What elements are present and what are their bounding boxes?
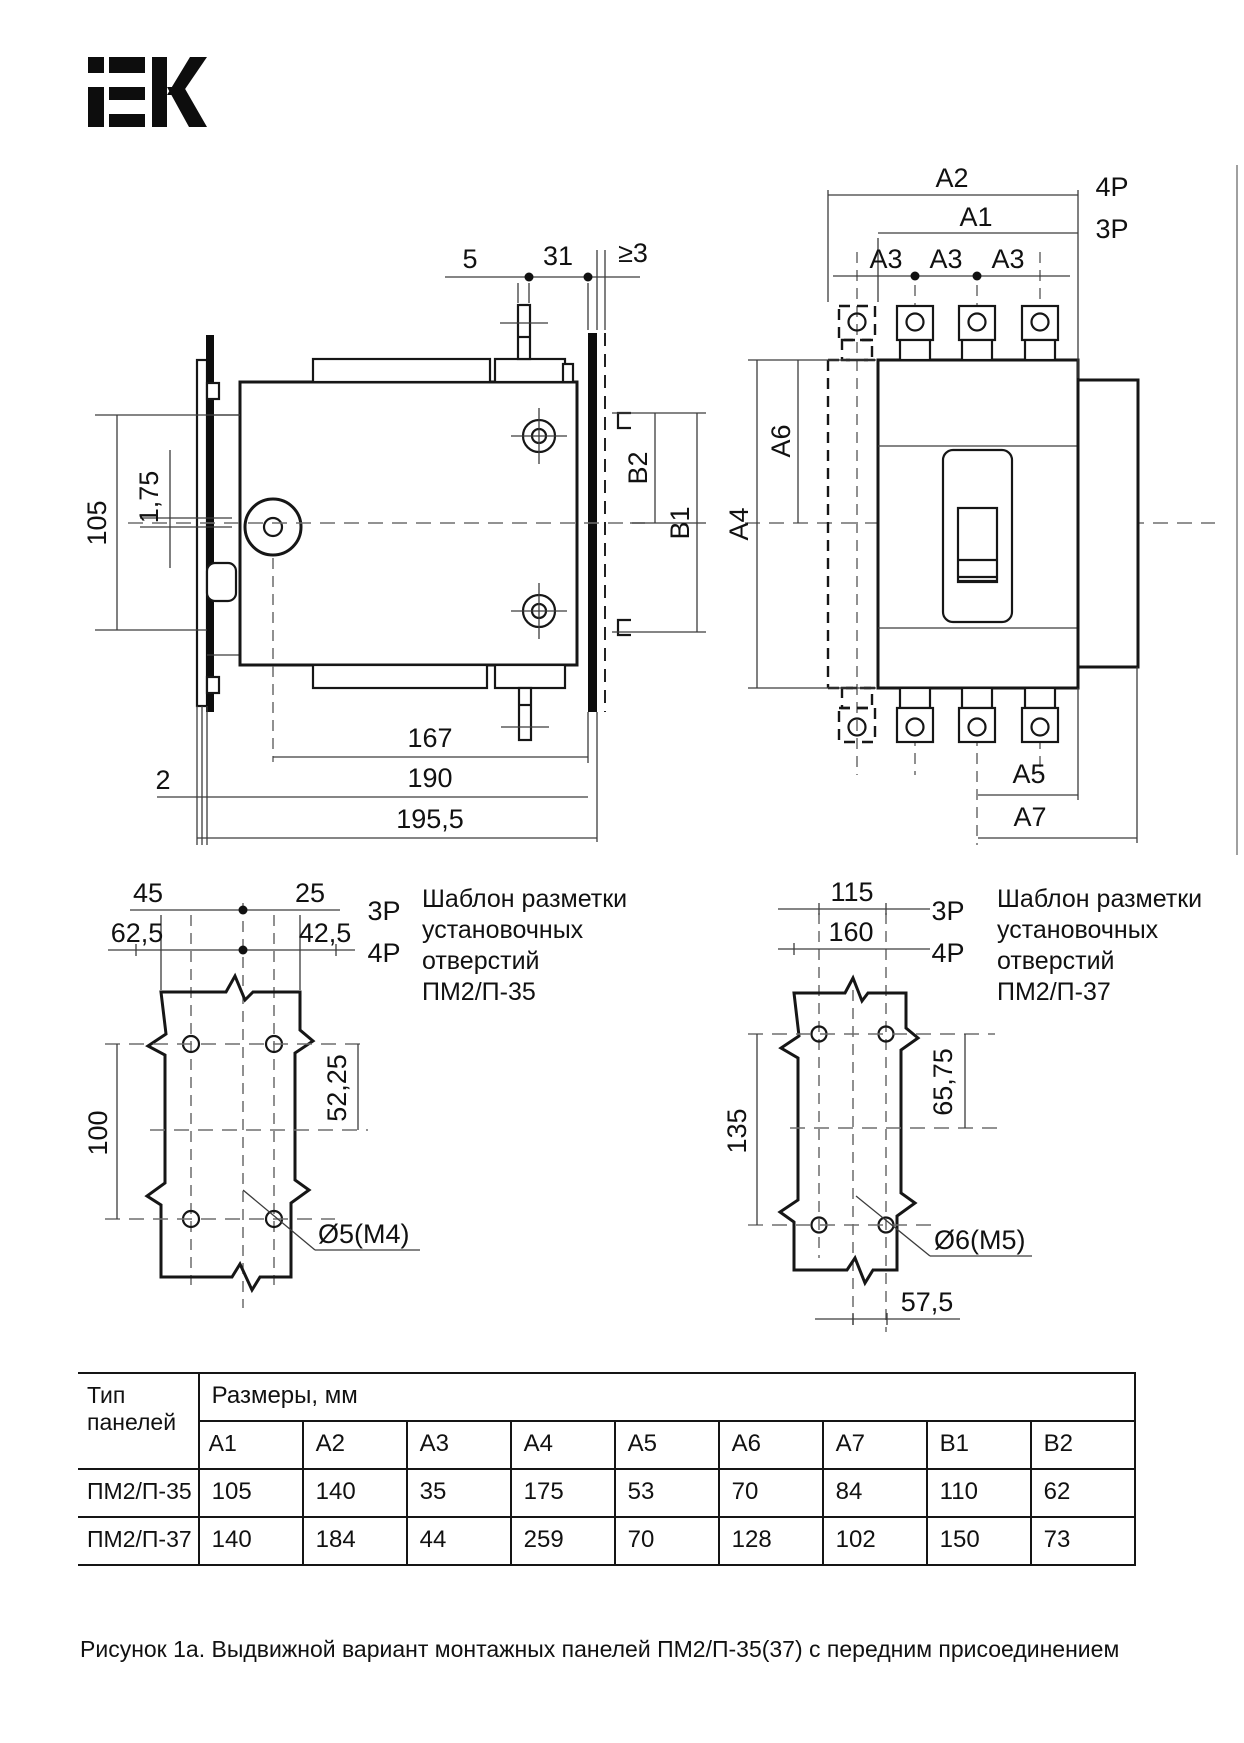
figure-caption: Рисунок 1а. Выдвижной вариант монтажных … bbox=[80, 1636, 1220, 1663]
dim-label-167: 167 bbox=[407, 723, 452, 753]
label-4p-t35: 4P bbox=[367, 938, 400, 968]
template-37-title-line1: Шаблон разметки bbox=[997, 884, 1202, 915]
dim-label-115: 115 bbox=[830, 877, 873, 907]
dim-label-2: 2 bbox=[155, 765, 170, 795]
dim-label-a5: A5 bbox=[1012, 759, 1045, 789]
col-header-a4: A4 bbox=[511, 1421, 615, 1469]
cell: 84 bbox=[823, 1469, 927, 1517]
label-3p-t35: 3P bbox=[367, 896, 400, 926]
col-header-b2: B2 bbox=[1031, 1421, 1135, 1469]
col-header-a5: A5 bbox=[615, 1421, 719, 1469]
cell: 70 bbox=[719, 1469, 823, 1517]
dim-label-1-75: 1,75 bbox=[134, 471, 164, 524]
dim-label-195-5: 195,5 bbox=[396, 804, 464, 834]
dim-label-a7: A7 bbox=[1013, 802, 1046, 832]
cell: 175 bbox=[511, 1469, 615, 1517]
cell: 73 bbox=[1031, 1517, 1135, 1565]
dim-label-a3-3: A3 bbox=[991, 244, 1024, 274]
col-header-a1: A1 bbox=[199, 1421, 303, 1469]
bottom-terminals bbox=[897, 688, 1058, 742]
hole-label-t35: Ø5(M4) bbox=[318, 1219, 410, 1249]
label-4p-t37: 4P bbox=[931, 938, 964, 968]
dim-label-57-5: 57,5 bbox=[901, 1287, 954, 1317]
template-pm2-p37: 115 160 3P 4P 135 65,75 Ø6(M5) 57,5 bbox=[722, 877, 1032, 1332]
label-3p: 3P bbox=[1095, 214, 1128, 244]
cell: 62 bbox=[1031, 1469, 1135, 1517]
dim-label-190: 190 bbox=[407, 763, 452, 793]
cell: 102 bbox=[823, 1517, 927, 1565]
cell: 110 bbox=[927, 1469, 1031, 1517]
table-subheader-row: A1 A2 A3 A4 A5 A6 A7 B1 B2 bbox=[78, 1421, 1135, 1469]
dim-label-25: 25 bbox=[295, 878, 325, 908]
col-header-a2: A2 bbox=[303, 1421, 407, 1469]
dimensions-table: Тип панелей Размеры, мм A1 A2 A3 A4 A5 A… bbox=[78, 1372, 1136, 1566]
dim-label-a3-1: A3 bbox=[869, 244, 902, 274]
dashed-fourth-pole bbox=[828, 306, 878, 742]
cell: 259 bbox=[511, 1517, 615, 1565]
top-terminals bbox=[897, 306, 1058, 360]
cell: 128 bbox=[719, 1517, 823, 1565]
table-row-pm2-p35: ПМ2/П-35 105 140 35 175 53 70 84 110 62 bbox=[78, 1469, 1135, 1517]
template-37-title-line2: установочных bbox=[997, 915, 1202, 946]
row-type: ПМ2/П-35 bbox=[78, 1469, 199, 1517]
dim-label-105: 105 bbox=[82, 500, 112, 545]
dim-label-a2: A2 bbox=[935, 163, 968, 193]
dim-label-135: 135 bbox=[722, 1108, 752, 1153]
dim-label-31: 31 bbox=[543, 241, 573, 271]
dim-label-5: 5 bbox=[462, 244, 477, 274]
table-header-sizes: Размеры, мм bbox=[199, 1373, 1135, 1421]
label-3p-t37: 3P bbox=[931, 896, 964, 926]
dim-label-ge3: ≥3 bbox=[618, 238, 648, 268]
cell: 140 bbox=[303, 1469, 407, 1517]
cell: 105 bbox=[199, 1469, 303, 1517]
dim-label-100: 100 bbox=[83, 1110, 113, 1155]
dim-label-b1: B1 bbox=[665, 506, 695, 539]
table-header-type: Тип панелей bbox=[78, 1373, 199, 1469]
dim-label-52-25: 52,25 bbox=[322, 1054, 352, 1122]
dim-label-45: 45 bbox=[133, 878, 163, 908]
cell: 35 bbox=[407, 1469, 511, 1517]
col-header-a6: A6 bbox=[719, 1421, 823, 1469]
side-view-drawing: 1,75 105 5 31 ≥3 B2 B1 167 bbox=[82, 238, 706, 845]
iek-logo bbox=[88, 57, 207, 127]
front-view-drawing: A2 A1 4P 3P A3 A3 A3 A4 A6 A5 A7 bbox=[724, 163, 1237, 855]
cell: 70 bbox=[615, 1517, 719, 1565]
template-35-title-line1: Шаблон разметки bbox=[422, 884, 627, 915]
dim-label-a6: A6 bbox=[766, 424, 796, 457]
col-header-a3: A3 bbox=[407, 1421, 511, 1469]
dim-label-a3-2: A3 bbox=[929, 244, 962, 274]
template-35-title-line2: установочных bbox=[422, 915, 627, 946]
label-4p: 4P bbox=[1095, 172, 1128, 202]
dim-label-65-75: 65,75 bbox=[928, 1048, 958, 1116]
template-35-title-line4: ПМ2/П-35 bbox=[422, 977, 627, 1008]
hole-label-t37: Ø6(M5) bbox=[934, 1225, 1026, 1255]
template-35-title-line3: отверстий bbox=[422, 946, 627, 977]
dim-label-160: 160 bbox=[828, 917, 873, 947]
cell: 53 bbox=[615, 1469, 719, 1517]
cell: 44 bbox=[407, 1517, 511, 1565]
cell: 184 bbox=[303, 1517, 407, 1565]
template-37-title: Шаблон разметки установочных отверстий П… bbox=[997, 884, 1202, 1008]
template-35-title: Шаблон разметки установочных отверстий П… bbox=[422, 884, 627, 1008]
table-row-pm2-p37: ПМ2/П-37 140 184 44 259 70 128 102 150 7… bbox=[78, 1517, 1135, 1565]
cell: 140 bbox=[199, 1517, 303, 1565]
cell: 150 bbox=[927, 1517, 1031, 1565]
template-37-title-line3: отверстий bbox=[997, 946, 1202, 977]
dim-label-b2: B2 bbox=[623, 451, 653, 484]
dim-label-a4: A4 bbox=[724, 507, 754, 540]
col-header-b1: B1 bbox=[927, 1421, 1031, 1469]
col-header-a7: A7 bbox=[823, 1421, 927, 1469]
row-type: ПМ2/П-37 bbox=[78, 1517, 199, 1565]
dim-label-62-5: 62,5 bbox=[111, 918, 164, 948]
dim-label-42-5: 42,5 bbox=[299, 918, 352, 948]
dim-label-a1: A1 bbox=[959, 202, 992, 232]
template-pm2-p35: 45 25 62,5 42,5 3P 4P 100 52,25 Ø5(M4) bbox=[83, 878, 420, 1308]
template-37-title-line4: ПМ2/П-37 bbox=[997, 977, 1202, 1008]
